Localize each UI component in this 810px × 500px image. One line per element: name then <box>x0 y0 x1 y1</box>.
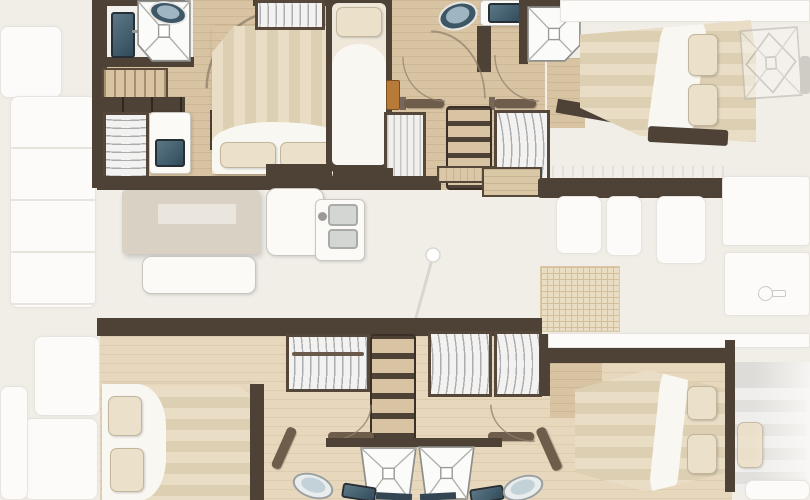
faucet-icon <box>318 212 327 221</box>
foredeck-panel <box>556 196 602 254</box>
foredeck-panel <box>722 176 810 246</box>
companionway-steps <box>370 334 416 444</box>
deck-hatch <box>737 24 804 102</box>
fade-overlay <box>735 362 810 492</box>
wardrobe <box>255 0 325 30</box>
pillow <box>110 448 144 492</box>
foredeck-panel <box>656 196 706 264</box>
door-swing-arc <box>490 404 536 442</box>
deck-slats <box>552 166 724 177</box>
double-bed <box>580 20 756 142</box>
head-partition <box>326 438 502 447</box>
sink-basin <box>328 229 358 249</box>
stern-deck-step <box>0 26 62 98</box>
foredeck-panel <box>724 252 810 316</box>
pillow <box>688 84 718 126</box>
bulkhead <box>97 176 397 190</box>
bulkhead <box>395 176 441 190</box>
forward-beam <box>538 178 748 198</box>
saloon-bench <box>142 256 256 294</box>
pillow <box>336 7 382 37</box>
vanity-sink <box>155 139 185 167</box>
door-swing-arc <box>430 30 486 100</box>
bed-frame <box>648 126 729 146</box>
stern-deck-step <box>24 418 98 500</box>
pillow <box>108 396 142 436</box>
side-deck <box>548 333 810 348</box>
stern-deck-step <box>745 480 810 500</box>
hull-wall <box>548 348 728 363</box>
saloon-table-inset <box>158 204 236 224</box>
wardrobe <box>286 334 370 392</box>
shower-step <box>376 492 412 500</box>
bow-fitting <box>800 56 810 94</box>
pillow <box>687 386 717 420</box>
trampoline <box>540 266 620 332</box>
wardrobe <box>428 331 492 397</box>
pillow <box>687 434 717 474</box>
windlass-icon <box>758 286 773 301</box>
stern-platform <box>10 96 96 308</box>
bed-frame <box>250 384 264 500</box>
windlass-icon <box>772 290 786 297</box>
sink-basin <box>328 204 358 226</box>
cabinet-band <box>95 97 185 113</box>
catamaran-floorplan <box>0 0 810 500</box>
side-deck <box>560 0 810 22</box>
galley-cabinet <box>482 167 542 197</box>
bathroom-sink <box>111 12 135 58</box>
foredeck-panel <box>606 196 642 256</box>
hull-edge <box>0 386 28 500</box>
double-bed <box>102 384 252 500</box>
stern-deck-step <box>34 336 100 416</box>
fwd-cabin-teak <box>547 58 585 128</box>
hanger-rod <box>292 352 364 356</box>
bathroom-sink <box>488 3 522 23</box>
door-swing-arc <box>326 404 372 442</box>
double-bed <box>575 370 727 492</box>
wardrobe <box>494 331 542 397</box>
bow-partition <box>725 340 735 492</box>
locker <box>386 80 400 110</box>
duvet <box>332 44 386 165</box>
pillow <box>688 34 718 76</box>
bow-berth <box>735 362 810 492</box>
shower-step <box>420 492 456 500</box>
